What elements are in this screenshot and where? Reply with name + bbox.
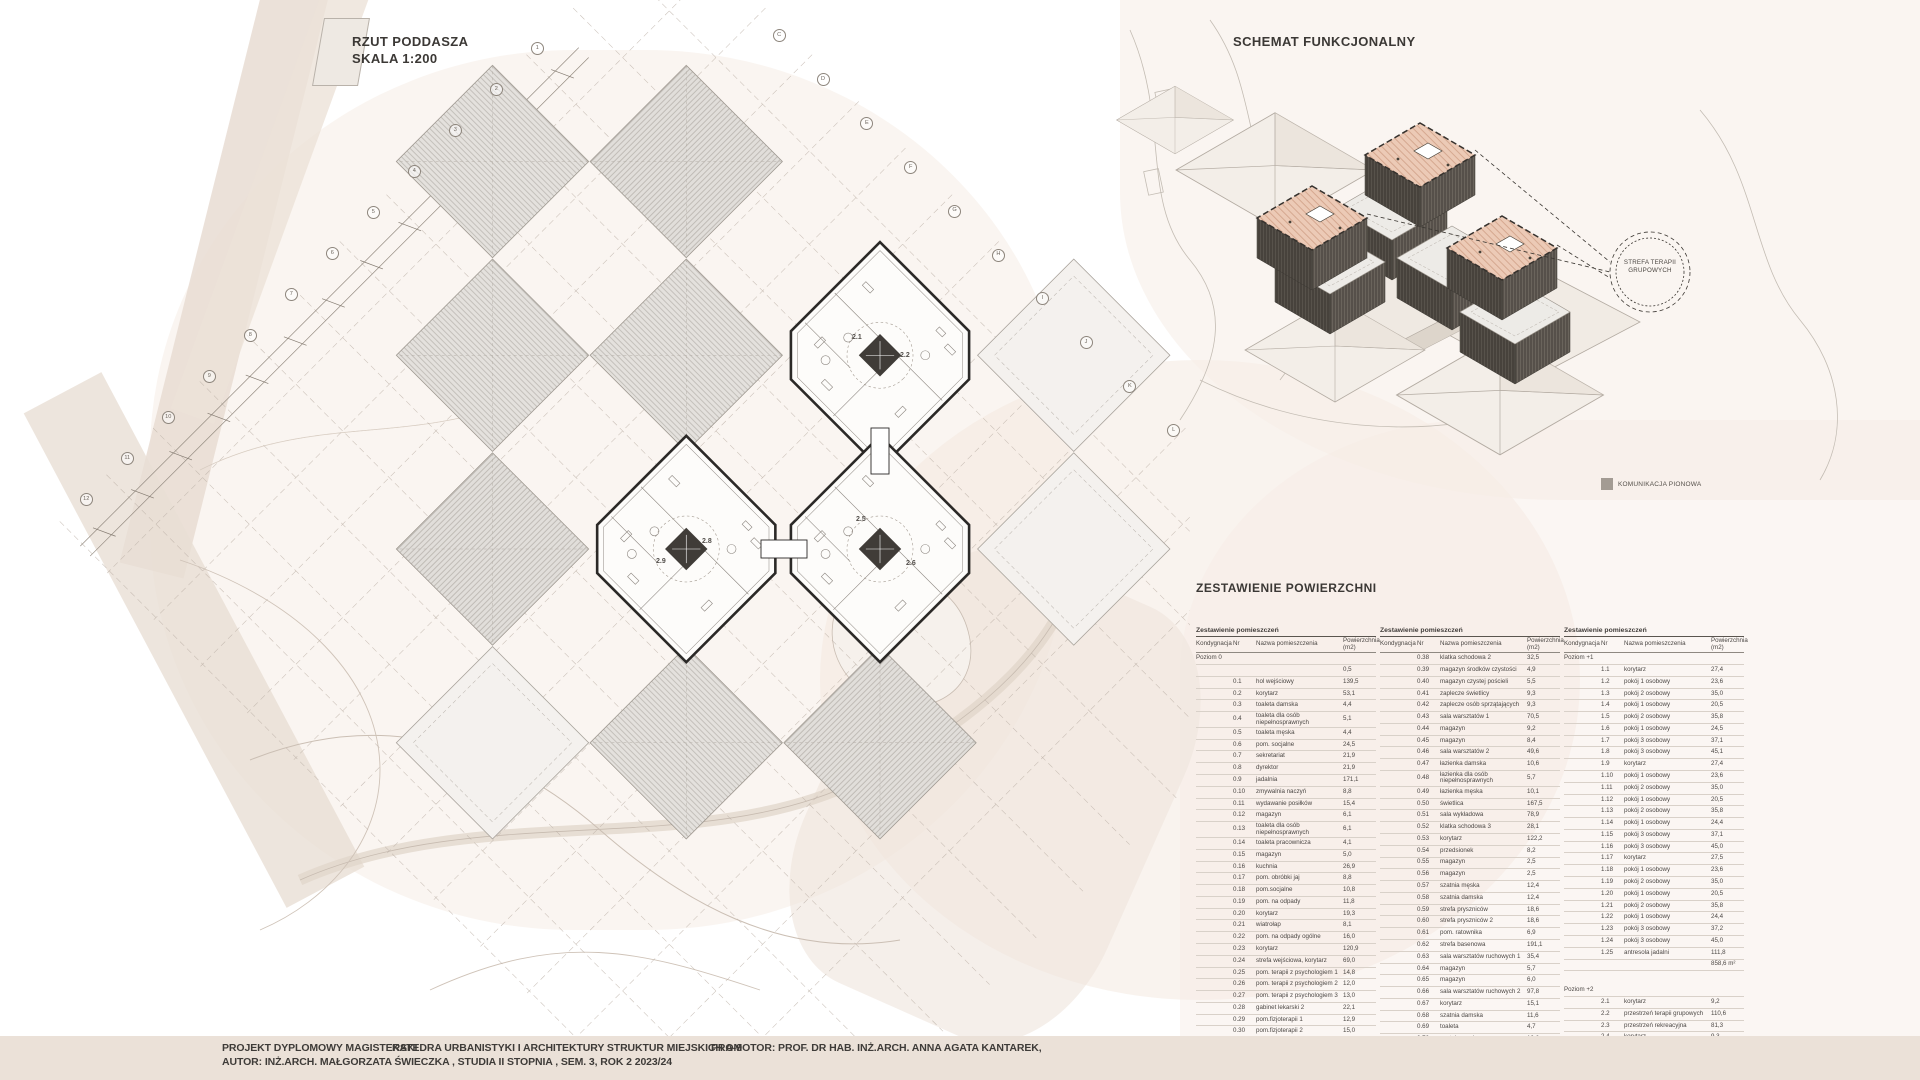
table-row: 0.10zmywalnia naczyń8,8 <box>1196 787 1376 799</box>
table-row: 0,5 <box>1196 665 1376 677</box>
table-row: 0.24strefa wejściowa, korytarz69,0 <box>1196 956 1376 968</box>
table-row: 0.12magazyn6,1 <box>1196 810 1376 822</box>
table-row: 0.1hol wejściowy139,5 <box>1196 677 1376 689</box>
department: KATEDRA URBANISTYKI I ARCHITEKTURY STRUK… <box>392 1042 742 1054</box>
plan-scale: SKALA 1:200 <box>352 51 438 66</box>
table-row: 0.67korytarz15,1 <box>1380 999 1560 1011</box>
table-row: 1.12pokój 1 osobowy20,5 <box>1564 795 1744 807</box>
table-row: 0.43sala warsztatów 170,5 <box>1380 712 1560 724</box>
table-row: 1.22pokój 1 osobowy24,4 <box>1564 912 1744 924</box>
grid-axis-bubble: D <box>817 73 830 86</box>
table-row: 0.18pom.socjalne10,8 <box>1196 885 1376 897</box>
table-row: 0.47łazienka damska10,6 <box>1380 759 1560 771</box>
table-row: 0.46sala warsztatów 249,6 <box>1380 747 1560 759</box>
area-table: Zestawienie pomieszczeńKondygnacjaNrNazw… <box>1564 626 1744 1080</box>
table-row: 0.40magazyn czystej pościeli5,5 <box>1380 677 1560 689</box>
table-row: 1.23pokój 3 osobowy37,2 <box>1564 924 1744 936</box>
table-row: 0.55magazyn2,5 <box>1380 858 1560 870</box>
table-row: 1.10pokój 1 osobowy23,6 <box>1564 771 1744 783</box>
table-row: 1.8pokój 3 osobowy45,1 <box>1564 747 1744 759</box>
table-row: 0.52klatka schodowa 328,1 <box>1380 822 1560 834</box>
table-row: 858,6 m² <box>1564 960 1744 972</box>
table-row: 0.28gabinet lekarski 222,1 <box>1196 1003 1376 1015</box>
table-row: 0.17pom. obróbki jaj8,8 <box>1196 873 1376 885</box>
table-row: 0.49łazienka męska10,1 <box>1380 787 1560 799</box>
project-type: PROJEKT DYPLOMOWY MAGISTERSKI <box>222 1042 417 1054</box>
table-row: 0.59strefa pryszniców18,6 <box>1380 905 1560 917</box>
table-row: 1.16pokój 3 osobowy45,0 <box>1564 842 1744 854</box>
table-row: 0.63sala warsztatów ruchowych 135,4 <box>1380 952 1560 964</box>
site-paths <box>180 390 1080 990</box>
table-row: 0.26pom. terapii z psychologiem 212,0 <box>1196 979 1376 991</box>
table-row: 0.13toaleta dla osób niepełnosprawnych6,… <box>1196 822 1376 838</box>
table-row: 0.6pom. socjalne24,5 <box>1196 740 1376 752</box>
grid-axis-bubble: 2 <box>490 83 503 96</box>
room-number: 2.1 <box>852 334 862 341</box>
table-row: 0.45magazyn8,4 <box>1380 736 1560 748</box>
table-subheading: Zestawienie pomieszczeń <box>1564 626 1744 637</box>
table-row: 1.4pokój 1 osobowy20,5 <box>1564 700 1744 712</box>
table-row: 1.19pokój 2 osobowy35,0 <box>1564 877 1744 889</box>
grid-axis-bubble: G <box>948 205 961 218</box>
table-row: 0.2korytarz53,1 <box>1196 689 1376 701</box>
room-number: 2.5 <box>856 516 866 523</box>
table-row: Poziom +1 <box>1564 653 1744 665</box>
grid-axis-bubble: 6 <box>326 247 339 260</box>
table-row: 1.1korytarz27,4 <box>1564 665 1744 677</box>
room-number: 2.8 <box>702 538 712 545</box>
grid-axis-bubble: 4 <box>408 165 421 178</box>
table-row: 0.23korytarz120,9 <box>1196 944 1376 956</box>
table-row: 0.51sala wykładowa78,9 <box>1380 810 1560 822</box>
title-block: PROJEKT DYPLOMOWY MAGISTERSKI KATEDRA UR… <box>0 1036 1920 1080</box>
table-row: 0.60strefa pryszniców 218,6 <box>1380 916 1560 928</box>
table-row: 1.7pokój 3 osobowy37,1 <box>1564 736 1744 748</box>
area-table: Zestawienie pomieszczeńKondygnacjaNrNazw… <box>1380 626 1560 1080</box>
promoter: PROMOTOR: PROF. DR HAB. INŻ.ARCH. ANNA A… <box>711 1042 1042 1054</box>
table-row: 0.16kuchnia26,9 <box>1196 862 1376 874</box>
grid-axis-bubble: H <box>992 249 1005 262</box>
table-row: 0.57szatnia męska12,4 <box>1380 881 1560 893</box>
table-row: 0.15magazyn5,0 <box>1196 850 1376 862</box>
table-row: 1.15pokój 3 osobowy37,1 <box>1564 830 1744 842</box>
table-row: 0.29pom.fizjoterapii 112,9 <box>1196 1015 1376 1027</box>
table-row: 0.53korytarz122,2 <box>1380 834 1560 846</box>
areas-heading: ZESTAWIENIE POWIERZCHNI <box>1196 581 1377 595</box>
table-row: 0.44magazyn9,2 <box>1380 724 1560 736</box>
area-tables: Zestawienie pomieszczeńKondygnacjaNrNazw… <box>1196 626 1756 1080</box>
table-row: 0.19pom. na odpady11,8 <box>1196 897 1376 909</box>
table-row: 0.8dyrektor21,9 <box>1196 763 1376 775</box>
legend-label: KOMUNIKACJA PIONOWA <box>1618 481 1701 488</box>
table-row: 0.4toaleta dla osób niepełnosprawnych5,1 <box>1196 712 1376 728</box>
grid-axis-bubble: 7 <box>285 288 298 301</box>
table-row: 1.24pokój 3 osobowy45,0 <box>1564 936 1744 948</box>
table-row: 1.21pokój 2 osobowy35,8 <box>1564 901 1744 913</box>
schematic-title: SCHEMAT FUNKCJONALNY <box>1233 34 1416 49</box>
table-row: 0.11wydawanie posiłków15,4 <box>1196 799 1376 811</box>
table-row: 0.64magazyn5,7 <box>1380 964 1560 976</box>
table-row: 0.5toaleta męska4,4 <box>1196 728 1376 740</box>
table-row: 0.9jadalnia171,1 <box>1196 775 1376 787</box>
table-row: 0.56magazyn2,5 <box>1380 869 1560 881</box>
author: AUTOR: INŻ.ARCH. MAŁGORZATA ŚWIECZKA , S… <box>222 1056 672 1068</box>
table-row: 1.17korytarz27,5 <box>1564 853 1744 865</box>
table-row: 2.3przestrzeń rekreacyjna81,3 <box>1564 1021 1744 1033</box>
table-row: 0.38klatka schodowa 232,5 <box>1380 653 1560 665</box>
vertical-communication-swatch <box>1601 478 1613 490</box>
plan-title: RZUT PODDASZASKALA 1:200 <box>352 33 468 67</box>
grid-axis-bubble: 5 <box>367 206 380 219</box>
table-row: Poziom 0 <box>1196 653 1376 665</box>
table-row: 1.13pokój 2 osobowy35,8 <box>1564 806 1744 818</box>
table-row: 1.9korytarz27,4 <box>1564 759 1744 771</box>
table-row: 0.14toaleta pracownicza4,1 <box>1196 838 1376 850</box>
area-table: Zestawienie pomieszczeńKondygnacjaNrNazw… <box>1196 626 1376 1080</box>
table-row: 0.50świetlica167,5 <box>1380 799 1560 811</box>
table-row: 0.65magazyn6,0 <box>1380 975 1560 987</box>
table-row: 1.25antresola jadalni111,8 <box>1564 948 1744 960</box>
table-row: 2.1korytarz9,2 <box>1564 997 1744 1009</box>
table-row: 0.3toaleta damska4,4 <box>1196 700 1376 712</box>
table-row: 1.6pokój 1 osobowy24,5 <box>1564 724 1744 736</box>
grid-axis-bubble: 8 <box>244 329 257 342</box>
table-header-row: KondygnacjaNrNazwa pomieszczeniaPowierzc… <box>1380 637 1560 653</box>
table-row: 0.48łazienka dla osób niepełnosprawnych5… <box>1380 771 1560 787</box>
table-row: 0.68szatnia damska11,6 <box>1380 1011 1560 1023</box>
table-header-row: KondygnacjaNrNazwa pomieszczeniaPowierzc… <box>1564 637 1744 653</box>
table-row: 0.25pom. terapii z psychologiem 114,8 <box>1196 968 1376 980</box>
table-row: 0.39magazyn środków czystości4,9 <box>1380 665 1560 677</box>
table-row: 1.14pokój 1 osobowy24,4 <box>1564 818 1744 830</box>
legend: KOMUNIKACJA PIONOWA <box>1601 478 1701 490</box>
room-number: 2.6 <box>906 560 916 567</box>
functional-schematic-drawing <box>1080 0 1920 560</box>
table-row: 1.18pokój 1 osobowy23,6 <box>1564 865 1744 877</box>
table-row: Poziom +2 <box>1564 985 1744 997</box>
grid-axis-bubble: 3 <box>449 124 462 137</box>
grid-axis-bubble: 11 <box>121 452 134 465</box>
table-row: 0.54przedsionek8,2 <box>1380 846 1560 858</box>
table-row: 0.27pom. terapii z psychologiem 313,0 <box>1196 991 1376 1003</box>
table-subheading: Zestawienie pomieszczeń <box>1380 626 1560 637</box>
table-row: 0.62strefa basenowa191,1 <box>1380 940 1560 952</box>
table-row: 0.20korytarz19,3 <box>1196 909 1376 921</box>
room-number: 2.2 <box>900 352 910 359</box>
poster: CDEFGHIJKL123456789101112 2.1 2.2 2.5 2.… <box>0 0 1920 1080</box>
table-row: 1.5pokój 2 osobowy35,8 <box>1564 712 1744 724</box>
table-row: 1.20pokój 1 osobowy20,5 <box>1564 889 1744 901</box>
table-row: 0.66sala warsztatów ruchowych 297,8 <box>1380 987 1560 999</box>
room-number: 2.9 <box>656 558 666 565</box>
table-row: 0.41zaplecze świetlicy9,3 <box>1380 689 1560 701</box>
table-row: 0.42zaplecze osób sprzątających9,3 <box>1380 700 1560 712</box>
table-row: 0.61pom. ratownika6,9 <box>1380 928 1560 940</box>
grid-axis-bubble: 12 <box>80 493 93 506</box>
grid-axis-bubble: 1 <box>531 42 544 55</box>
table-row: 1.2pokój 1 osobowy23,6 <box>1564 677 1744 689</box>
table-row: 2.2przestrzeń terapii grupowych110,6 <box>1564 1009 1744 1021</box>
therapy-zone-label: STREFA TERAPIIGRUPOWYCH <box>1613 259 1687 275</box>
table-row: 0.21wiatrołap8,1 <box>1196 920 1376 932</box>
table-row: 1.3pokój 2 osobowy35,0 <box>1564 689 1744 701</box>
table-row: 0.22pom. na odpady ogólne16,0 <box>1196 932 1376 944</box>
table-row: 0.69toaleta4,7 <box>1380 1022 1560 1034</box>
grid-axis-bubble: 9 <box>203 370 216 383</box>
table-row: 0.7sekretariat21,9 <box>1196 751 1376 763</box>
site-plan-drawing <box>0 0 1190 1040</box>
table-row: 0.58szatnia damska12,4 <box>1380 893 1560 905</box>
table-subheading: Zestawienie pomieszczeń <box>1196 626 1376 637</box>
table-header-row: KondygnacjaNrNazwa pomieszczeniaPowierzc… <box>1196 637 1376 653</box>
grid-axis-bubble: 10 <box>162 411 175 424</box>
table-row: 1.11pokój 2 osobowy35,0 <box>1564 783 1744 795</box>
